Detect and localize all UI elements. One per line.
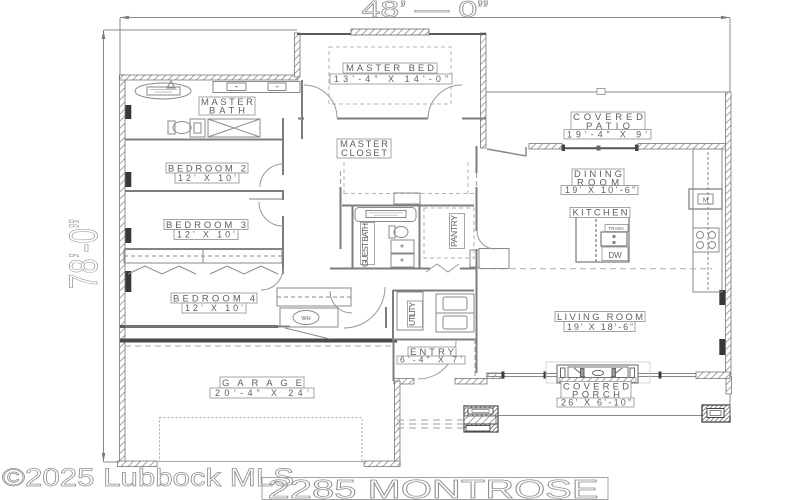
svg-text:19’ X 10’-6”: 19’ X 10’-6” xyxy=(565,185,635,195)
svg-text:GUEST BATH: GUEST BATH xyxy=(360,223,370,267)
svg-text:DW: DW xyxy=(608,251,622,260)
svg-text:WH: WH xyxy=(301,316,310,322)
svg-text:MASTER BED: MASTER BED xyxy=(346,63,434,74)
svg-text:PANTRY: PANTRY xyxy=(449,215,459,247)
svg-text:26’ X 6’-10”: 26’ X 6’-10” xyxy=(561,398,631,408)
svg-text:2285 MONTROSE: 2285 MONTROSE xyxy=(268,474,599,500)
svg-text:12’ X 10’: 12’ X 10’ xyxy=(178,173,236,183)
svg-text:12’ X 10’: 12’ X 10’ xyxy=(177,230,235,240)
svg-text:©2025 Lubbock MLS: ©2025 Lubbock MLS xyxy=(2,464,294,492)
svg-text:19’ X 18’-6”: 19’ X 18’-6” xyxy=(567,322,633,332)
svg-text:12’ X 10’: 12’ X 10’ xyxy=(185,303,243,313)
svg-text:48’ — 0”: 48’ — 0” xyxy=(362,0,489,22)
svg-text:TRASH: TRASH xyxy=(608,226,623,231)
svg-text:M: M xyxy=(703,198,708,204)
svg-text:78’-0”: 78’-0” xyxy=(62,219,106,289)
svg-text:UTILITY: UTILITY xyxy=(407,302,417,326)
